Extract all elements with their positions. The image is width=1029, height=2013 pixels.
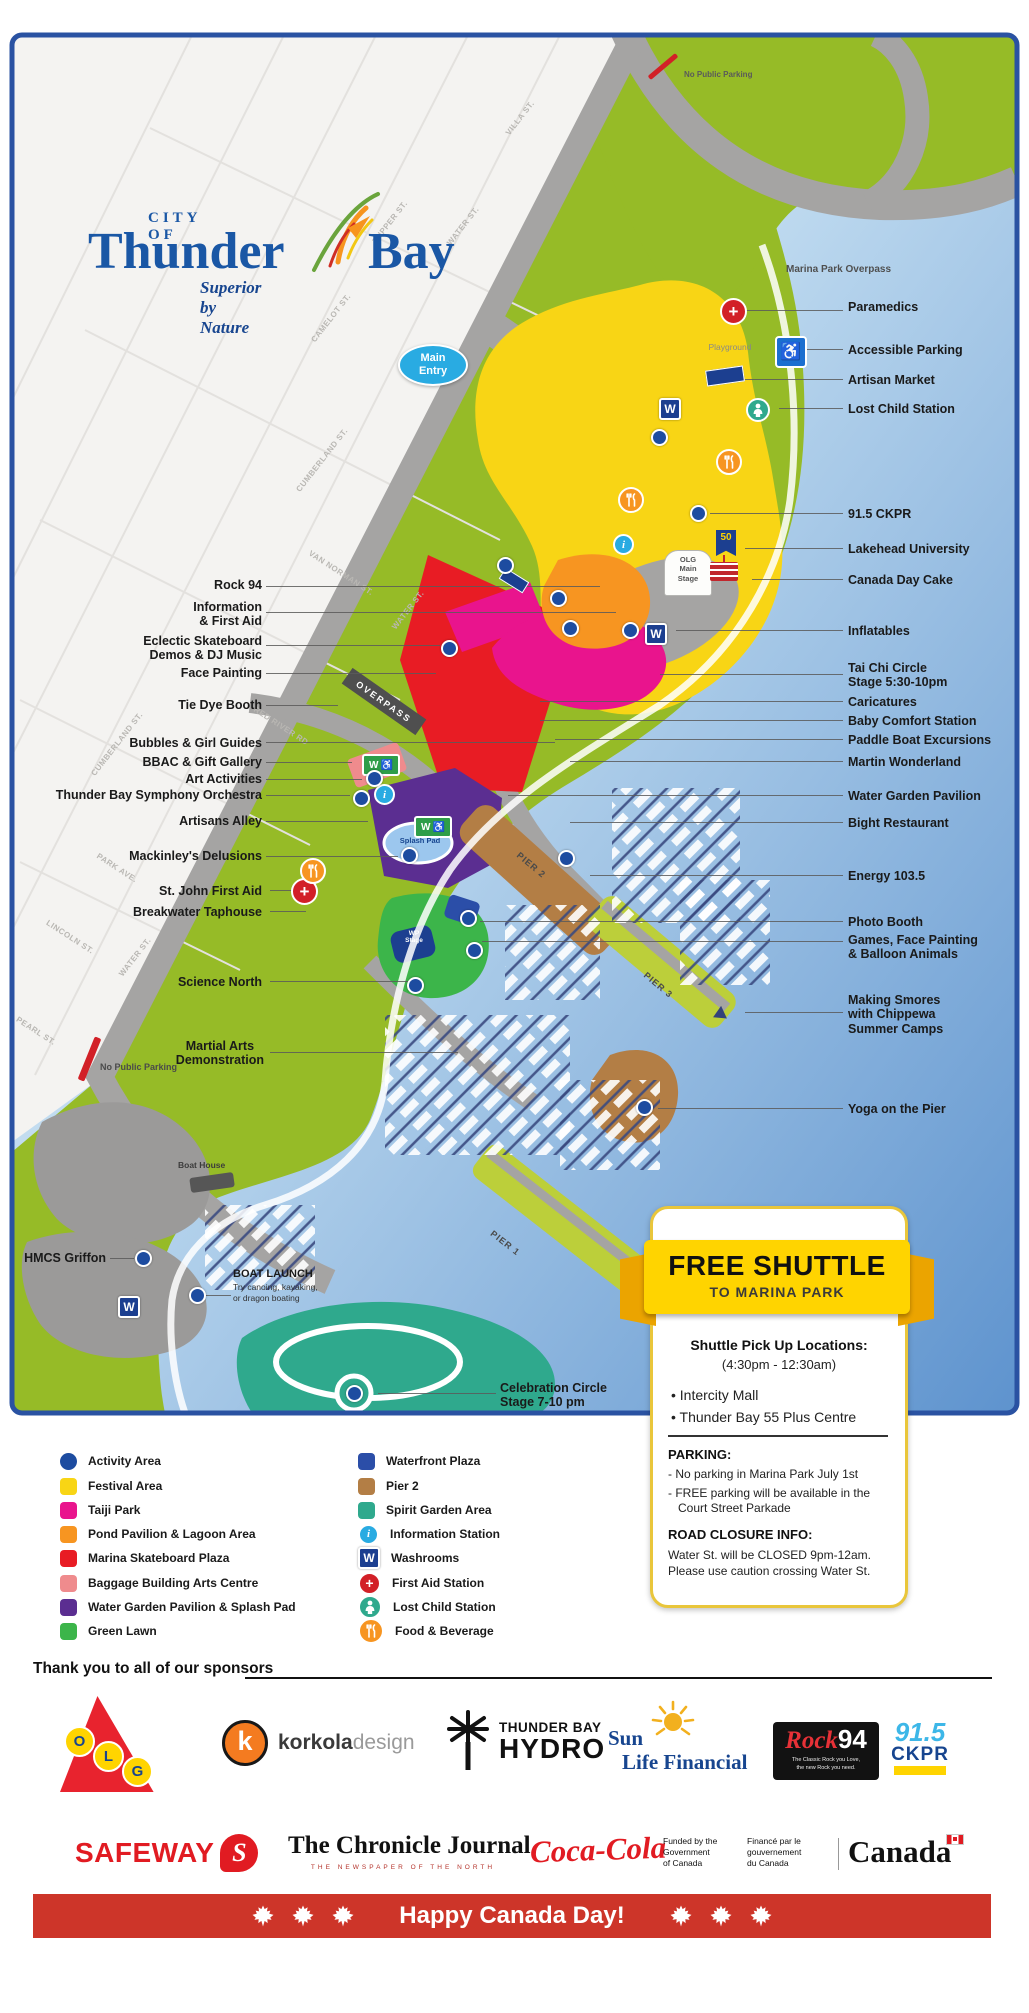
parking-item: - FREE parking will be available in the … <box>668 1486 900 1516</box>
legend-item: Waterfront Plaza <box>358 1451 480 1471</box>
map-label-photo-booth: Photo Booth <box>848 915 923 929</box>
legend-label: Food & Beverage <box>395 1624 494 1638</box>
first-aid-icon: + <box>358 1572 381 1595</box>
map-label-breakwater-taphouse: Breakwater Taphouse <box>133 905 262 919</box>
logo-tagline: Superior by Nature <box>200 278 261 338</box>
boat-launch-title: BOAT LAUNCH <box>233 1268 318 1280</box>
chronicle-logo: The Chronicle Journal THE NEWSPAPER OF T… <box>288 1832 518 1871</box>
map-label-bight-restaurant: Bight Restaurant <box>848 816 949 830</box>
olg-ball-g: G <box>122 1756 153 1787</box>
ckpr-number: 91.5 <box>888 1720 952 1745</box>
shuttle-pickup-title: Shuttle Pick Up Locations: <box>653 1337 905 1353</box>
legend-swatch <box>60 1453 77 1470</box>
map-label-paramedics: Paramedics <box>848 300 918 314</box>
legend-swatch <box>358 1478 375 1495</box>
map-label-caricatures: Caricatures <box>848 695 917 709</box>
utensils-glyph <box>625 493 638 507</box>
wheelchair-symbol: ♿ <box>780 342 801 362</box>
callout-line <box>480 921 843 922</box>
activity-dot <box>550 590 567 607</box>
washroom-icon: W <box>645 623 667 645</box>
callout-line <box>266 645 440 646</box>
parking-item: - No parking in Marina Park July 1st <box>668 1467 900 1482</box>
free-shuttle-subtitle: TO MARINA PARK <box>644 1284 910 1300</box>
legend-label: Activity Area <box>88 1454 161 1468</box>
callout-line <box>266 762 352 763</box>
rock94-number: 94 <box>838 1724 867 1754</box>
korkola-light: design <box>353 1731 415 1754</box>
washroom-icon: W <box>659 398 681 420</box>
map-label-paddle-boat-excursions: Paddle Boat Excursions <box>848 733 991 747</box>
olg-logo: O L G <box>60 1696 164 1792</box>
activity-dot <box>497 557 514 574</box>
free-shuttle-title: FREE SHUTTLE <box>644 1250 910 1282</box>
info-letter: i <box>622 539 625 551</box>
washroom-icon: W <box>358 1547 380 1569</box>
activity-dot <box>562 620 579 637</box>
legend-swatch <box>358 1453 375 1470</box>
washroom-letter: W <box>664 402 675 416</box>
callout-line <box>205 1295 231 1296</box>
callout-line <box>676 630 843 631</box>
callout-line <box>570 822 843 823</box>
washroom-letter: W <box>369 760 378 771</box>
legend-label: Waterfront Plaza <box>386 1454 480 1468</box>
washroom-letter: W <box>650 627 661 641</box>
map-label-water-garden-pavilion: Water Garden Pavilion <box>848 789 981 803</box>
legend-label: Baggage Building Arts Centre <box>88 1576 258 1590</box>
legend-label: Washrooms <box>391 1551 459 1565</box>
callout-line <box>745 379 843 380</box>
callout-line <box>540 720 843 721</box>
legend-item: Baggage Building Arts Centre <box>60 1573 258 1593</box>
olg-main-stage: OLG Main Stage <box>664 550 712 596</box>
map-label-making-smores: Making Smores with Chippewa Summer Camps <box>848 993 943 1036</box>
legend-item: Activity Area <box>60 1451 161 1471</box>
wheelchair-symbol: ♿ <box>433 822 445 833</box>
map-label-canada-day-cake: Canada Day Cake <box>848 573 953 587</box>
chronicle-subtitle: THE NEWSPAPER OF THE NORTH <box>288 1864 518 1871</box>
banner-message: Happy Canada Day! <box>399 1902 624 1930</box>
road-closure-title: ROAD CLOSURE INFO: <box>668 1527 812 1542</box>
no-parking-top-label: No Public Parking <box>684 70 752 79</box>
map-label-eclectic-skateboard: Eclectic Skateboard Demos & DJ Music <box>143 634 262 663</box>
legend-item: Festival Area <box>60 1476 162 1496</box>
callout-line <box>555 739 843 740</box>
divider <box>838 1838 839 1870</box>
marina-docks <box>385 1015 570 1155</box>
legend-swatch <box>60 1623 77 1640</box>
info-icon: i <box>374 784 395 805</box>
utensils-glyph <box>365 1624 378 1638</box>
callout-line <box>270 890 292 891</box>
korkola-logo: k korkoladesign <box>222 1720 415 1766</box>
map-label-accessible-parking: Accessible Parking <box>848 343 963 357</box>
maple-leaf-icon <box>709 1904 733 1928</box>
sun-icon <box>648 1698 698 1744</box>
activity-dot <box>346 1385 363 1402</box>
rock94-tagline: The Classic Rock you Love, the new Rock … <box>773 1756 879 1773</box>
legend-item: +First Aid Station <box>358 1573 484 1593</box>
activity-dot <box>189 1287 206 1304</box>
divider <box>668 1435 888 1437</box>
legend-item: Pier 2 <box>358 1476 419 1496</box>
info-icon: i <box>613 534 634 555</box>
chronicle-name: The Chronicle Journal <box>288 1832 518 1860</box>
washroom-accessible-icon: W♿ <box>414 816 452 838</box>
callout-line <box>266 742 555 743</box>
legend-label: Spirit Garden Area <box>386 1503 492 1517</box>
legend-item: Taiji Park <box>60 1500 140 1520</box>
maple-leaf-icon <box>291 1904 315 1928</box>
marina-park-overpass-label: Marina Park Overpass <box>786 264 891 275</box>
road-closure-text: Water St. will be CLOSED 9pm-12am. Pleas… <box>668 1547 894 1579</box>
callout-line <box>660 674 843 675</box>
activity-dot <box>401 847 418 864</box>
rock94-logo: Rock94 The Classic Rock you Love, the ne… <box>773 1722 879 1780</box>
maple-leaf-icon <box>251 1904 275 1928</box>
map-label-st-john-first-aid: St. John First Aid <box>159 884 262 898</box>
legend-label: Taiji Park <box>88 1503 140 1517</box>
callout-line <box>806 349 843 350</box>
sunlife-sun-text: Sun <box>608 1726 643 1751</box>
maple-leaf-icon <box>331 1904 355 1928</box>
map-label-tie-dye-booth: Tie Dye Booth <box>178 698 262 712</box>
food-icon <box>300 858 326 884</box>
callout-line <box>266 673 436 674</box>
food-icon <box>358 1618 384 1644</box>
activity-dot <box>651 429 668 446</box>
washroom-letter: W <box>421 822 430 833</box>
activity-dot <box>441 640 458 657</box>
activity-dot <box>690 505 707 522</box>
map-label-artisans-alley: Artisans Alley <box>179 814 262 828</box>
marina-docks <box>505 905 600 1000</box>
logo-swoosh-icon <box>308 188 382 276</box>
flag-50-number: 50 <box>720 532 731 543</box>
playground-label: Playground <box>690 342 770 352</box>
legend-swatch <box>60 1575 77 1592</box>
legend-swatch <box>60 1550 77 1567</box>
wp-stage-label: WP Stage <box>396 930 432 944</box>
heading-rule <box>245 1677 992 1679</box>
callout-line <box>540 701 843 702</box>
map-label-artisan-market: Artisan Market <box>848 373 935 387</box>
lost-child-icon <box>358 1595 382 1619</box>
first-aid-cross: + <box>729 303 739 320</box>
legend-swatch <box>60 1502 77 1519</box>
legend-label: Marina Skateboard Plaza <box>88 1551 229 1565</box>
ckpr-logo: 91.5 CKPR <box>888 1720 952 1775</box>
ckpr-banner-bar <box>894 1766 946 1775</box>
callout-line <box>746 310 843 311</box>
map-label-bbac-gift-gallery: BBAC & Gift Gallery <box>143 755 262 769</box>
olg-ball-o: O <box>64 1726 95 1757</box>
activity-dot <box>366 770 383 787</box>
legend-label: Green Lawn <box>88 1624 157 1638</box>
canada-wordmark: Canada <box>848 1834 951 1870</box>
boat-house-label: Boat House <box>178 1160 225 1170</box>
callout-line <box>779 408 843 409</box>
callout-line <box>378 1393 496 1394</box>
first-aid-cross: + <box>300 883 310 900</box>
legend-item: WWashrooms <box>358 1548 459 1568</box>
legend-label: Water Garden Pavilion & Splash Pad <box>88 1600 296 1614</box>
canada-flag-icon <box>946 1834 964 1845</box>
washroom-letter: W <box>363 1551 374 1565</box>
safeway-logo: SAFEWAY S <box>75 1834 258 1872</box>
person-glyph <box>364 1600 376 1614</box>
legend-item: iInformation Station <box>358 1524 500 1544</box>
info-letter: i <box>367 1528 370 1540</box>
happy-canada-day-banner: Happy Canada Day! <box>33 1894 991 1938</box>
parking-title: PARKING: <box>668 1447 731 1462</box>
legend-item: Green Lawn <box>60 1621 157 1641</box>
callout-line <box>658 1108 843 1109</box>
callout-line <box>266 779 362 780</box>
callout-line <box>266 705 338 706</box>
cake-candle <box>723 555 725 562</box>
logo-thunder: Thunder <box>88 222 285 281</box>
legend-item: Food & Beverage <box>358 1621 494 1641</box>
korkola-bold: korkola <box>278 1731 353 1754</box>
map-label-inflatables: Inflatables <box>848 624 910 638</box>
legend-item: Water Garden Pavilion & Splash Pad <box>60 1597 296 1617</box>
activity-dot <box>466 942 483 959</box>
activity-dot <box>353 790 370 807</box>
activity-dot <box>636 1099 653 1116</box>
callout-line <box>266 856 398 857</box>
hydro-logo: THUNDER BAY HYDRO <box>445 1710 605 1772</box>
rock94-script: Rock <box>785 1727 838 1754</box>
main-entry-badge: Main Entry <box>398 344 468 386</box>
callout-line <box>745 1012 843 1013</box>
map-label-art-activities: Art Activities <box>185 772 262 786</box>
utensils-glyph <box>307 864 320 878</box>
legend-label: Information Station <box>390 1527 500 1541</box>
first-aid-icon: + <box>720 298 747 325</box>
funded-fr: Financé par le gouvernement du Canada <box>747 1836 801 1869</box>
person-glyph <box>752 403 764 417</box>
safeway-s-mark: S <box>220 1834 258 1872</box>
coca-cola-logo: Coca-Cola <box>529 1830 666 1871</box>
info-letter: i <box>383 789 386 801</box>
activity-dot <box>460 910 477 927</box>
marina-docks <box>560 1080 660 1170</box>
activity-dot <box>135 1250 152 1267</box>
legend-swatch <box>60 1526 77 1543</box>
accessible-parking-icon: ♿ <box>775 336 807 368</box>
map-label-information-first-aid: Information & First Aid <box>193 600 262 629</box>
map-label-hmcs-griffon: HMCS Griffon <box>24 1251 106 1265</box>
callout-line <box>110 1258 134 1259</box>
callout-line <box>570 761 843 762</box>
map-label-tai-chi-circle: Tai Chi Circle Stage 5:30-10pm <box>848 661 947 690</box>
maple-leaf-icon <box>669 1904 693 1928</box>
funded-en: Funded by the Government of Canada <box>663 1836 717 1869</box>
callout-line <box>710 513 843 514</box>
activity-dot <box>407 977 424 994</box>
callout-line <box>270 981 408 982</box>
washroom-letter: W <box>123 1300 134 1314</box>
map-label-yoga-on-the-pier: Yoga on the Pier <box>848 1102 946 1116</box>
callout-line <box>752 579 843 580</box>
map-label-baby-comfort-station: Baby Comfort Station <box>848 714 976 728</box>
legend-item: Pond Pavilion & Lagoon Area <box>60 1524 256 1544</box>
legend-label: First Aid Station <box>392 1576 484 1590</box>
korkola-k-icon: k <box>222 1720 268 1766</box>
callout-line <box>270 1052 458 1053</box>
maple-leaf-icon <box>749 1904 773 1928</box>
map-label-bubbles-girl-guides: Bubbles & Girl Guides <box>129 736 262 750</box>
legend-label: Lost Child Station <box>393 1600 496 1614</box>
map-label-lakehead-university: Lakehead University <box>848 542 970 556</box>
windmill-icon <box>445 1710 491 1772</box>
callout-line <box>508 795 843 796</box>
legend-swatch <box>60 1478 77 1495</box>
sunlife-rest-text: Life Financial <box>622 1750 747 1775</box>
callout-line <box>270 911 306 912</box>
boat-launch-label: BOAT LAUNCH Try canoing, kayaking, or dr… <box>233 1268 318 1304</box>
wheelchair-symbol: ♿ <box>381 760 393 771</box>
legend-label: Festival Area <box>88 1479 162 1493</box>
washroom-icon: W <box>118 1296 140 1318</box>
map-label-energy-1035: Energy 103.5 <box>848 869 925 883</box>
map-label-rock94: Rock 94 <box>214 578 262 592</box>
map-label-science-north: Science North <box>178 975 262 989</box>
callout-line <box>745 548 843 549</box>
legend-item: Marina Skateboard Plaza <box>60 1548 229 1568</box>
legend-item: Spirit Garden Area <box>358 1500 492 1520</box>
lost-child-icon <box>746 398 770 422</box>
map-label-mackinleys-delusions: Mackinley's Delusions <box>129 849 262 863</box>
map-label-ckpr: 91.5 CKPR <box>848 507 911 521</box>
callout-line <box>266 795 350 796</box>
shuttle-location: • Thunder Bay 55 Plus Centre <box>671 1409 856 1425</box>
canada-day-map-poster: CITY OF Thunder Bay Superior by Nature T… <box>0 0 1029 2013</box>
map-label-games-face-painting: Games, Face Painting & Balloon Animals <box>848 933 978 962</box>
info-icon: i <box>358 1524 379 1545</box>
map-label-celebration-circle: Celebration Circle Stage 7-10 pm <box>500 1381 607 1410</box>
map-label-martin-wonderland: Martin Wonderland <box>848 755 961 769</box>
shuttle-pickup-hours: (4:30pm - 12:30am) <box>653 1357 905 1372</box>
boat-launch-sub: Try canoing, kayaking, or dragon boating <box>233 1282 318 1304</box>
legend-label: Pier 2 <box>386 1479 419 1493</box>
first-aid-cross: + <box>365 1576 373 1590</box>
map-label-symphony-orchestra: Thunder Bay Symphony Orchestra <box>56 788 262 802</box>
map-label-martial-arts: Martial Arts Demonstration <box>176 1039 264 1068</box>
legend-swatch <box>358 1502 375 1519</box>
map-label-lost-child-station: Lost Child Station <box>848 402 955 416</box>
legend-label: Pond Pavilion & Lagoon Area <box>88 1527 256 1541</box>
canada-day-cake-marker <box>710 562 738 581</box>
activity-dot <box>558 850 575 867</box>
map-label-face-painting: Face Painting <box>181 666 262 680</box>
activity-dot <box>622 622 639 639</box>
hydro-bottom: HYDRO <box>499 1735 605 1763</box>
food-icon <box>716 449 742 475</box>
ckpr-letters: CKPR <box>888 1745 952 1764</box>
sponsors-heading: Thank you to all of our sponsors <box>33 1660 273 1678</box>
marina-docks <box>680 880 770 985</box>
safeway-name: SAFEWAY <box>75 1837 214 1869</box>
utensils-glyph <box>723 455 736 469</box>
callout-line <box>266 821 368 822</box>
no-parking-bottom-label: No Public Parking <box>100 1062 177 1072</box>
olg-ball-l: L <box>93 1741 124 1772</box>
callout-line <box>482 941 843 942</box>
shuttle-location: • Intercity Mall <box>671 1387 758 1403</box>
legend-item: Lost Child Station <box>358 1597 496 1617</box>
food-icon <box>618 487 644 513</box>
callout-line <box>590 875 843 876</box>
callout-line <box>266 586 600 587</box>
callout-line <box>266 612 616 613</box>
legend-swatch <box>60 1599 77 1616</box>
